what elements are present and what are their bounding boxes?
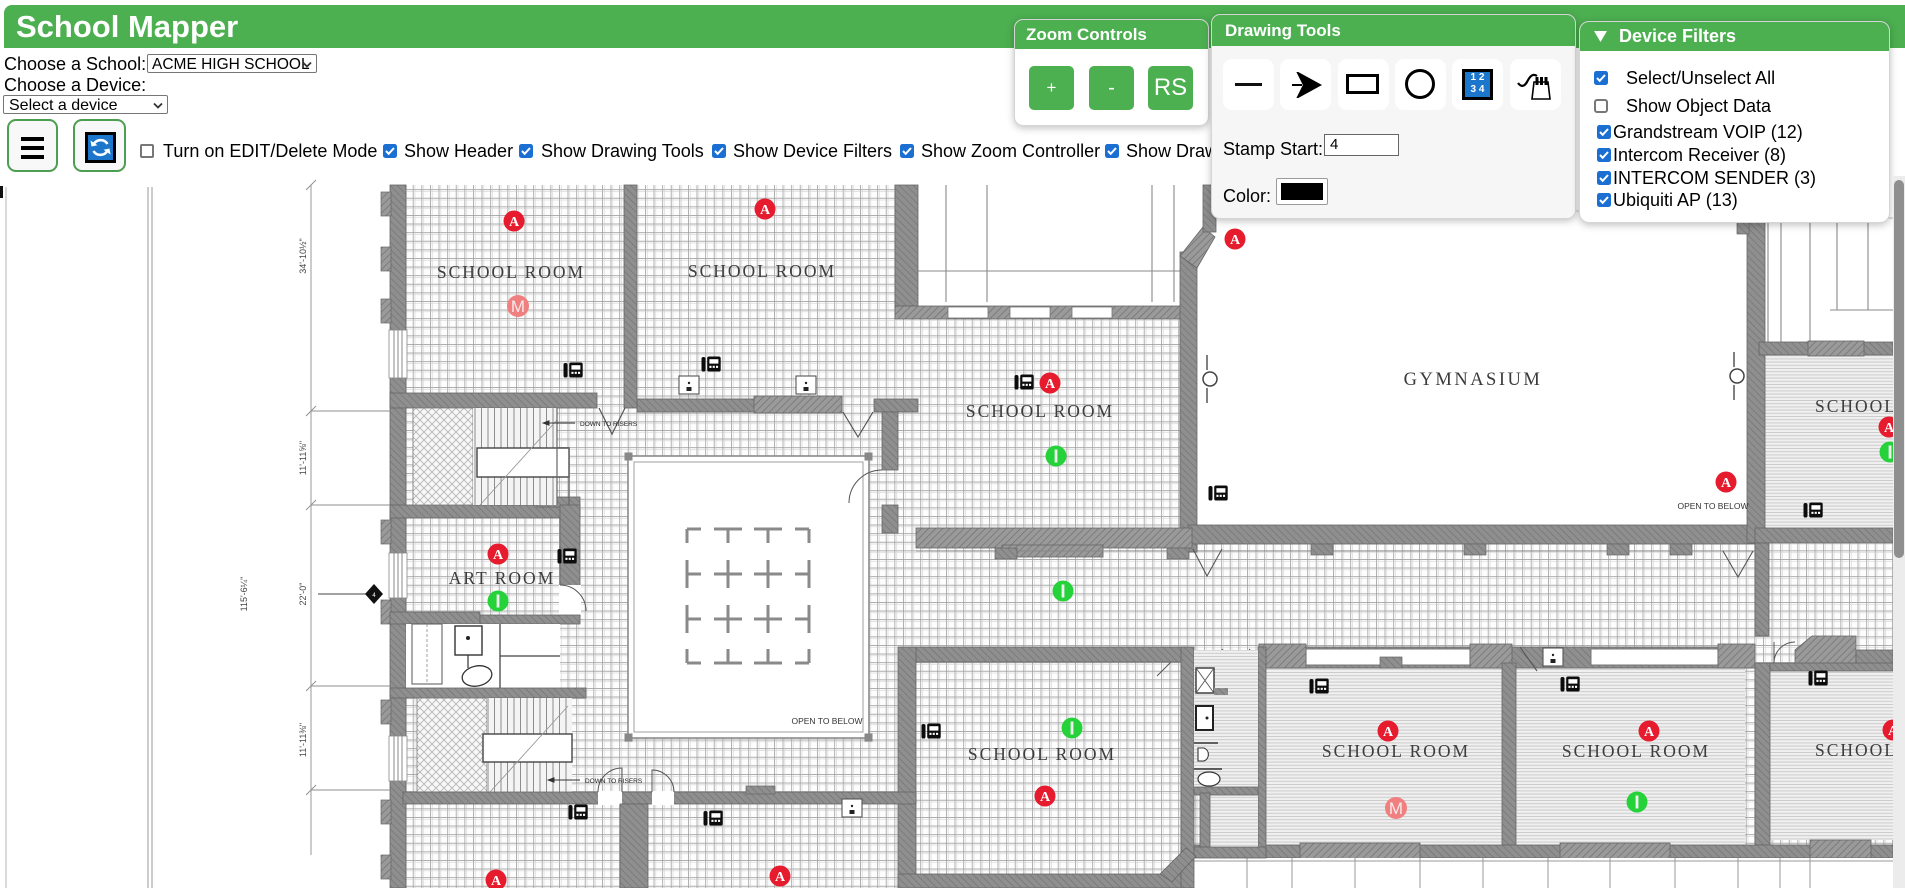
svg-text:DOWN TO RISERS: DOWN TO RISERS [580, 421, 638, 428]
svg-text:ART ROOM: ART ROOM [449, 568, 556, 588]
svg-text:SCHOOL ROOM: SCHOOL ROOM [966, 401, 1114, 421]
svg-text:OPEN TO BELOW: OPEN TO BELOW [1677, 501, 1748, 511]
svg-text:11'-11⅜": 11'-11⅜" [298, 723, 308, 757]
svg-text:SCHOOL ROOM: SCHOOL ROOM [437, 262, 585, 282]
svg-text:SCHOOL ROOM: SCHOOL ROOM [688, 261, 836, 281]
svg-text:SCHOOL ROOM: SCHOOL ROOM [1562, 741, 1710, 761]
svg-text:SCHOOL: SCHOOL [1815, 396, 1897, 416]
svg-text:SCHOOL: SCHOOL [1815, 740, 1897, 760]
svg-text:SCHOOL ROOM: SCHOOL ROOM [1322, 741, 1470, 761]
svg-text:OPEN TO BELOW: OPEN TO BELOW [791, 716, 862, 726]
svg-text:11'-11⅝": 11'-11⅝" [298, 441, 308, 475]
svg-text:SCHOOL ROOM: SCHOOL ROOM [968, 744, 1116, 764]
svg-text:GYMNASIUM: GYMNASIUM [1404, 370, 1543, 390]
svg-text:22'-0": 22'-0" [298, 583, 308, 606]
svg-text:DOWN TO RISERS: DOWN TO RISERS [585, 778, 643, 785]
svg-text:115'-6¼": 115'-6¼" [239, 577, 249, 612]
svg-text:34'-10½": 34'-10½" [298, 238, 308, 273]
